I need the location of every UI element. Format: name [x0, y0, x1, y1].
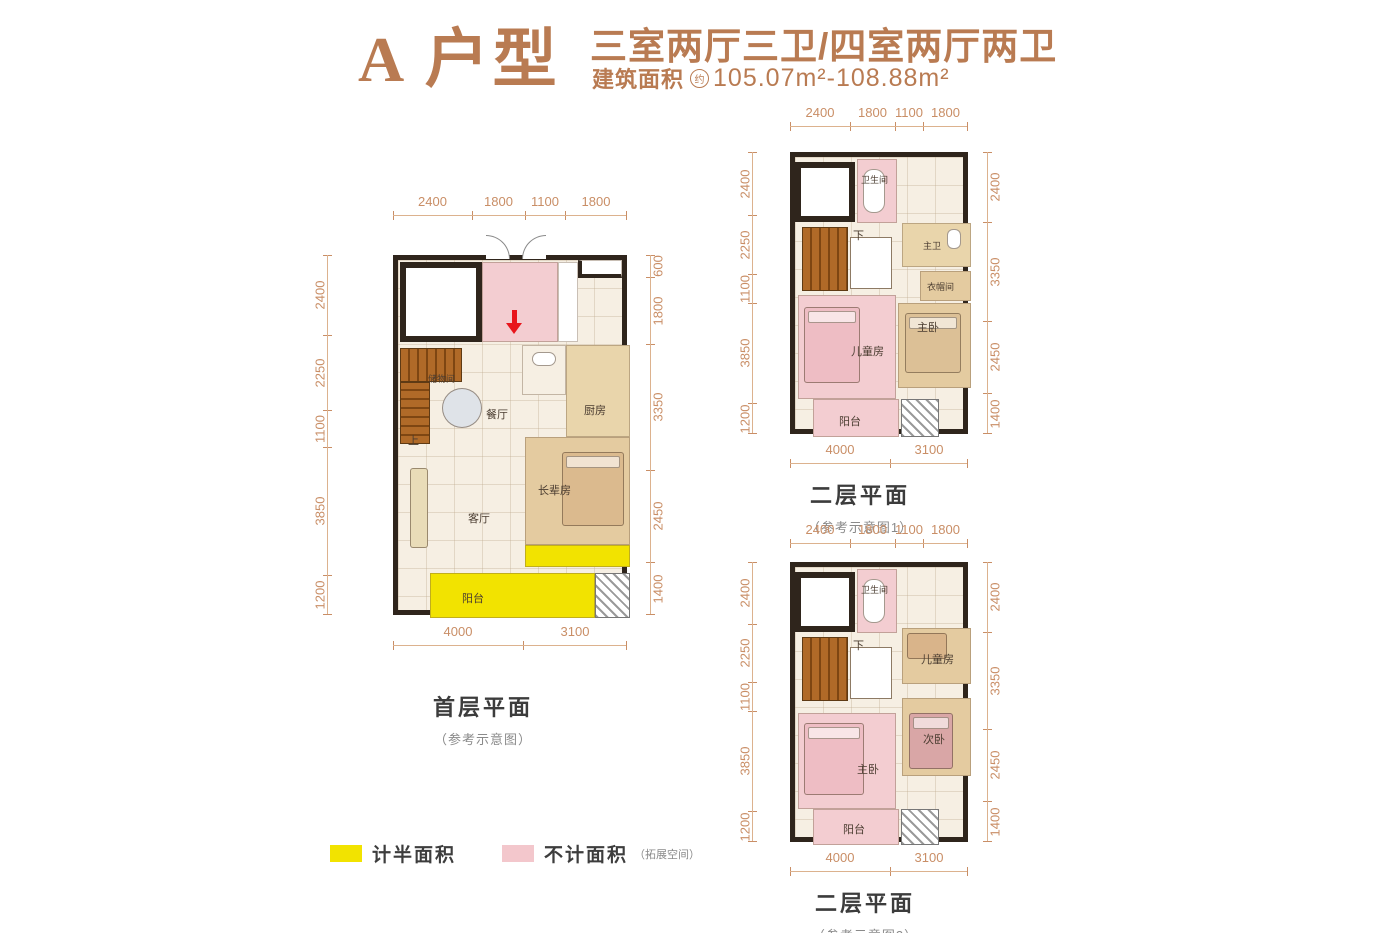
- dim-chain-right: 600 1800 3350 2450 1400: [645, 255, 671, 615]
- dim-label: 1800: [565, 194, 627, 209]
- room-label-cloakroom: 衣帽间: [927, 280, 954, 293]
- dim-label: 4000: [790, 442, 890, 457]
- dim-segment: 3100: [523, 624, 627, 650]
- dim-label: 2400: [790, 105, 850, 120]
- dim-label: 1800: [472, 194, 525, 209]
- dim-segment: 3100: [890, 850, 968, 876]
- elevator-shaft: [400, 262, 482, 342]
- dim-label: 1100: [313, 415, 328, 443]
- dim-segment: 2400: [307, 255, 333, 335]
- dim-segment: 2400: [393, 194, 472, 220]
- dim-segment: 2250: [732, 215, 758, 274]
- dim-segment: 3350: [645, 344, 671, 470]
- dim-label: 1800: [923, 522, 968, 537]
- stairs-down-label: 下: [853, 227, 864, 243]
- toilet-icon: [532, 352, 556, 366]
- room-label-balcony: 阳台: [839, 413, 861, 429]
- room-label-kids: 儿童房: [921, 651, 954, 667]
- room-label-master-bath: 主卫: [923, 239, 941, 252]
- dim-label: 1200: [738, 404, 753, 433]
- dim-label: 2400: [738, 579, 753, 608]
- room-label-living: 客厅: [468, 510, 490, 526]
- dim-label: 1800: [651, 296, 666, 325]
- toilet-icon: [947, 229, 961, 249]
- setback-notch: [578, 260, 622, 278]
- elder-yellow-strip: [525, 545, 630, 567]
- dim-label: 2250: [313, 358, 328, 387]
- legend-no-area-label: 不计面积: [544, 840, 628, 867]
- dim-label: 3350: [651, 393, 666, 422]
- dim-segment: 1100: [525, 194, 565, 220]
- caption-second-floor-2: 二层平面 （参考示意图2）: [765, 886, 965, 933]
- dim-segment: 1200: [732, 403, 758, 434]
- dim-segment: 4000: [790, 850, 890, 876]
- dim-label: 1200: [313, 581, 328, 610]
- entry-closet: [558, 262, 578, 342]
- dim-segment: 1800: [923, 522, 968, 548]
- area-value: 105.07m²-108.88m²: [713, 64, 950, 93]
- page-title: A 户型: [358, 8, 561, 100]
- bed-icon: [562, 452, 624, 526]
- room-label-second: 次卧: [923, 731, 945, 747]
- dim-chain-right: 2400 3350 2450 1400: [982, 152, 1008, 434]
- dim-chain-right: 2400 3350 2450 1400: [982, 562, 1008, 842]
- dim-segment: 1100: [732, 682, 758, 711]
- floor-plan-second-1: 卫生间 主卫 衣帽间 主卧 儿童房 阳台 下: [790, 152, 968, 434]
- caption-note: （参考示意图）: [363, 729, 603, 748]
- caption-title: 首层平面: [363, 690, 603, 722]
- dim-segment: 1400: [645, 562, 671, 615]
- dim-label: 3100: [523, 624, 627, 639]
- dim-label: 1100: [525, 194, 565, 209]
- area-line: 建筑面积 约 105.07m²-108.88m²: [592, 62, 950, 94]
- dim-chain-top: 2400 1800 1100 1800: [790, 105, 968, 131]
- door-arc-icon: [522, 235, 546, 259]
- dim-label: 1800: [850, 522, 895, 537]
- dim-label: 1400: [988, 807, 1003, 836]
- caption-title: 二层平面: [765, 886, 965, 918]
- dim-chain-left: 2400 2250 1100 3850 1200: [732, 152, 758, 434]
- dim-label: 600: [651, 255, 666, 277]
- legend-yellow-swatch: [330, 845, 362, 862]
- dim-label: 3850: [738, 339, 753, 368]
- stairs-down-label: 下: [853, 637, 864, 653]
- dim-label: 3850: [738, 747, 753, 776]
- dim-chain-left: 2400 2250 1100 3850 1200: [732, 562, 758, 842]
- dim-segment: 1800: [472, 194, 525, 220]
- floor-plan-first: 储物间 餐厅 厨房 客厅 长辈房 阳台 上: [393, 255, 627, 615]
- dim-segment: 2450: [645, 470, 671, 562]
- room-label-master: 主卧: [857, 761, 879, 777]
- dim-label: 1800: [923, 105, 968, 120]
- dim-segment: 3350: [982, 222, 1008, 321]
- elevator-shaft: [795, 572, 855, 632]
- legend-no-area-note: （拓展空间）: [634, 846, 700, 862]
- stairs-up-label: 上: [408, 432, 419, 448]
- stairs: [802, 637, 848, 701]
- dim-chain-bottom: 4000 3100: [790, 850, 968, 876]
- caption-first-floor: 首层平面 （参考示意图）: [363, 690, 603, 748]
- dim-segment: 2250: [732, 624, 758, 682]
- dim-label: 2400: [790, 522, 850, 537]
- legend-half-area-label: 计半面积: [372, 840, 456, 867]
- dim-label: 3100: [890, 850, 968, 865]
- dim-label: 2250: [738, 230, 753, 259]
- dim-segment: 1100: [895, 522, 923, 548]
- dim-label: 1100: [738, 683, 753, 711]
- caption-title: 二层平面: [760, 478, 960, 510]
- dim-segment: 2450: [982, 321, 1008, 393]
- dim-segment: 4000: [393, 624, 523, 650]
- dim-label: 2400: [988, 173, 1003, 202]
- dim-segment: 4000: [790, 442, 890, 468]
- dim-segment: 1800: [645, 277, 671, 344]
- stair-well: [850, 647, 892, 699]
- dim-label: 1400: [651, 574, 666, 603]
- dim-segment: 1100: [895, 105, 923, 131]
- dim-segment: 3850: [307, 447, 333, 575]
- dim-segment: 2400: [982, 152, 1008, 222]
- dim-segment: 3850: [732, 303, 758, 403]
- dim-label: 3850: [313, 497, 328, 526]
- door-arc-icon: [486, 235, 510, 259]
- dim-label: 2400: [988, 583, 1003, 612]
- dim-label: 2400: [313, 281, 328, 310]
- dim-segment: 3850: [732, 711, 758, 811]
- dim-segment: 2400: [732, 152, 758, 215]
- area-label: 建筑面积: [592, 62, 684, 94]
- legend-pink-swatch: [502, 845, 534, 862]
- stairs: [802, 227, 848, 291]
- room-balcony: [430, 573, 595, 618]
- dim-segment: 2400: [790, 522, 850, 548]
- dim-chain-left: 2400 2250 1100 3850 1200: [307, 255, 333, 615]
- dim-chain-top: 2400 1800 1100 1800: [790, 522, 968, 548]
- dim-segment: 1800: [850, 105, 895, 131]
- dining-table-icon: [442, 388, 482, 428]
- dim-segment: 600: [645, 255, 671, 277]
- dim-label: 1100: [895, 105, 923, 120]
- dim-segment: 1200: [732, 811, 758, 842]
- dim-label: 1200: [738, 812, 753, 841]
- dim-segment: 3350: [982, 632, 1008, 729]
- dim-segment: 1100: [732, 274, 758, 303]
- dim-chain-bottom: 4000 3100: [790, 442, 968, 468]
- dim-segment: 1800: [565, 194, 627, 220]
- dim-label: 2450: [988, 751, 1003, 780]
- dim-segment: 2400: [790, 105, 850, 131]
- room-label-bathroom: 卫生间: [861, 583, 888, 596]
- room-label-dining: 餐厅: [486, 406, 508, 422]
- room-label-balcony: 阳台: [843, 821, 865, 837]
- dim-label: 1100: [895, 522, 923, 537]
- dim-segment: 1800: [850, 522, 895, 548]
- room-label-bathroom: 卫生间: [861, 173, 888, 186]
- dim-chain-top: 2400 1800 1100 1800: [393, 194, 627, 220]
- dim-chain-bottom: 4000 3100: [393, 624, 627, 650]
- dim-segment: 1200: [307, 575, 333, 615]
- room-label-balcony: 阳台: [462, 590, 484, 606]
- caption-note: （参考示意图2）: [765, 925, 965, 933]
- dim-label: 2400: [738, 169, 753, 198]
- room-label-kitchen: 厨房: [584, 402, 606, 418]
- dim-segment: 1400: [982, 393, 1008, 434]
- room-label-kids: 儿童房: [851, 343, 884, 359]
- room-label-storage: 储物间: [428, 372, 455, 385]
- dim-label: 2450: [651, 502, 666, 531]
- dim-label: 3350: [988, 257, 1003, 286]
- dim-label: 1800: [850, 105, 895, 120]
- ac-platform: [595, 573, 630, 618]
- dim-label: 1100: [738, 275, 753, 303]
- dim-segment: 2400: [732, 562, 758, 624]
- dim-segment: 2250: [307, 335, 333, 410]
- dim-label: 1400: [988, 399, 1003, 428]
- page-root: A 户型 三室两厅三卫/四室两厅两卫 建筑面积 约 105.07m²-108.8…: [0, 0, 1400, 933]
- dim-label: 2250: [738, 639, 753, 668]
- ac-platform: [901, 399, 939, 437]
- dim-label: 3350: [988, 666, 1003, 695]
- ac-platform: [901, 809, 939, 845]
- room-label-elder: 长辈房: [538, 482, 571, 498]
- room-kitchen: [566, 345, 630, 437]
- dim-segment: 2400: [982, 562, 1008, 632]
- approx-badge: 约: [690, 69, 709, 88]
- room-label-master: 主卧: [917, 319, 939, 335]
- floor-plan-second-2: 卫生间 儿童房 次卧 主卧 阳台 下: [790, 562, 968, 842]
- dim-segment: 3100: [890, 442, 968, 468]
- dim-label: 2450: [988, 343, 1003, 372]
- legend: 计半面积 不计面积 （拓展空间）: [330, 840, 700, 867]
- dim-label: 2400: [393, 194, 472, 209]
- dim-segment: 1800: [923, 105, 968, 131]
- dim-label: 4000: [393, 624, 523, 639]
- dim-label: 3100: [890, 442, 968, 457]
- bed-icon: [804, 723, 864, 795]
- elevator-shaft: [795, 162, 855, 222]
- dim-segment: 2450: [982, 729, 1008, 801]
- dim-label: 4000: [790, 850, 890, 865]
- stair-well: [850, 237, 892, 289]
- sofa-icon: [410, 468, 428, 548]
- dim-segment: 1400: [982, 801, 1008, 842]
- dim-segment: 1100: [307, 410, 333, 447]
